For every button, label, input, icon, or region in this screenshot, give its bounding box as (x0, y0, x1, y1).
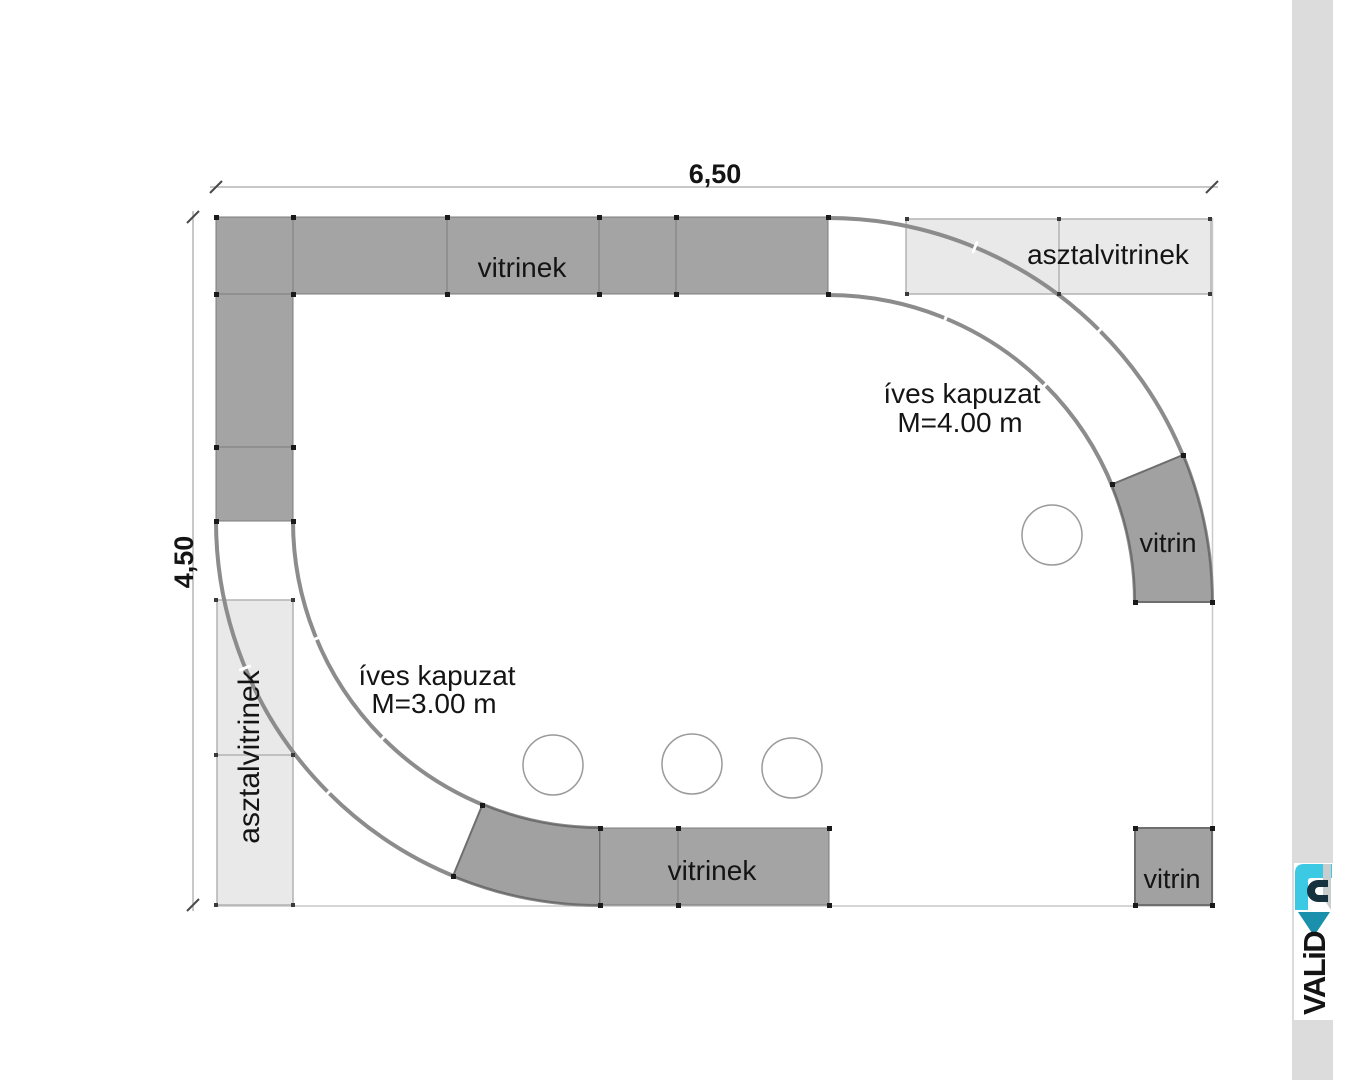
label-vitrin-corner: vitrin (1143, 864, 1200, 894)
label-asztalvitrinek-left: asztalvitrinek (233, 669, 266, 843)
display-band (216, 217, 293, 521)
arc-tick (312, 637, 321, 641)
label-asztalvitrinek-top: asztalvitrinek (1027, 239, 1190, 270)
valid-logo: VALiD (1294, 863, 1333, 1020)
label-vitrin-arc: vitrin (1139, 528, 1196, 558)
dimension-left: 4,50 (169, 211, 199, 911)
curved-case-segment (453, 805, 600, 905)
bottom-display-band (453, 805, 829, 905)
column-circle (1022, 505, 1082, 565)
arc-tick (944, 314, 948, 323)
column-circles (523, 505, 1082, 798)
dimension-height-label: 4,50 (169, 536, 199, 589)
dimension-width-label: 6,50 (689, 159, 742, 189)
annotation-gateway-left-line1: íves kapuzat (358, 660, 515, 691)
column-circle (762, 738, 822, 798)
column-circle (662, 734, 722, 794)
annotation-gateway-left-line2: M=3.00 m (371, 688, 496, 719)
annotation-gateway-right-line1: íves kapuzat (883, 378, 1040, 409)
left-display-band (216, 217, 293, 521)
label-top-vitrinek: vitrinek (478, 252, 568, 283)
dimension-top: 6,50 (210, 159, 1218, 193)
label-bottom-vitrinek: vitrinek (668, 855, 758, 886)
arc-inner (828, 295, 1135, 602)
annotation-gateway-right-line2: M=4.00 m (897, 407, 1022, 438)
floor-plan-page: 6,50 4,50 (0, 0, 1360, 1080)
column-circle (523, 735, 583, 795)
logo-text: VALiD (1297, 931, 1332, 1015)
floor-plan-svg: 6,50 4,50 (0, 0, 1360, 1080)
